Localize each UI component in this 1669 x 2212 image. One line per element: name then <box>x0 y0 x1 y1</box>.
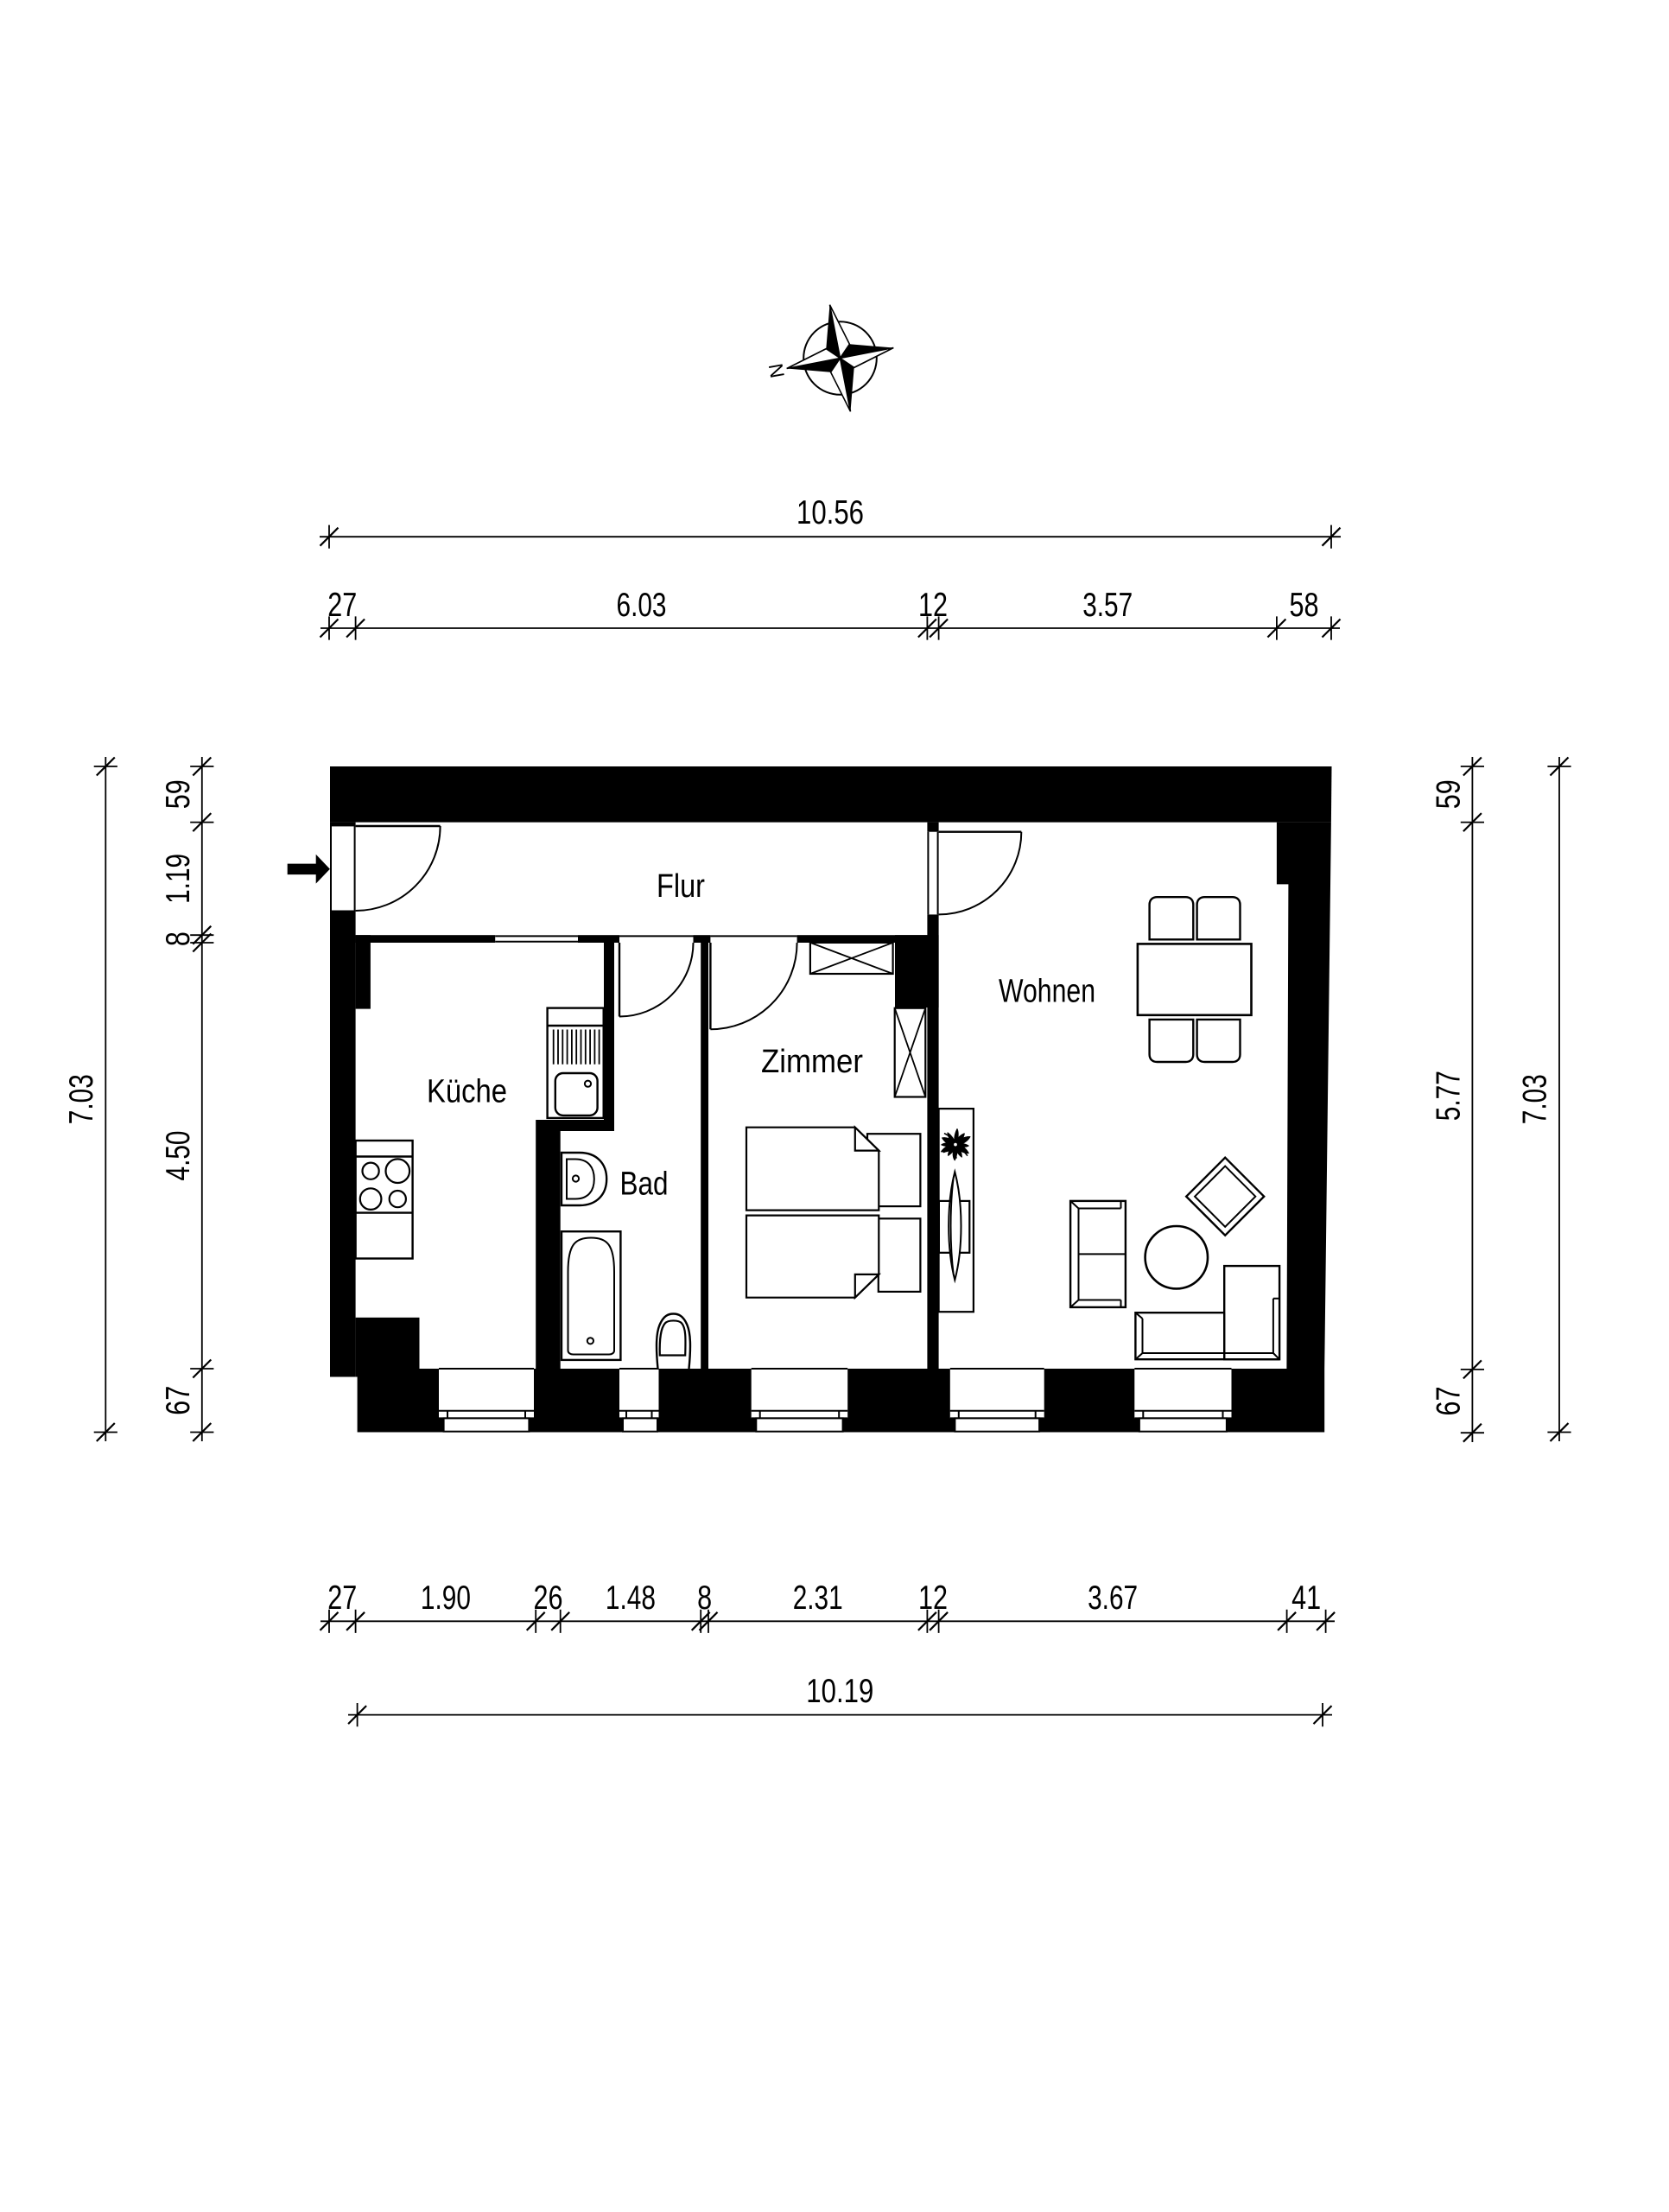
svg-text:1.48: 1.48 <box>606 1580 656 1617</box>
svg-text:7.03: 7.03 <box>1517 1074 1554 1124</box>
svg-text:Zimmer: Zimmer <box>761 1044 863 1080</box>
svg-text:67: 67 <box>1431 1387 1468 1416</box>
svg-text:7.03: 7.03 <box>63 1074 100 1124</box>
svg-text:27: 27 <box>327 1580 357 1617</box>
svg-text:10.56: 10.56 <box>796 494 864 531</box>
svg-text:41: 41 <box>1291 1580 1321 1617</box>
svg-text:1.19: 1.19 <box>160 854 197 904</box>
svg-text:27: 27 <box>327 587 357 624</box>
svg-text:Küche: Küche <box>427 1074 507 1110</box>
svg-text:3.67: 3.67 <box>1088 1580 1138 1617</box>
svg-text:Wohnen: Wohnen <box>999 973 1095 1009</box>
svg-text:59: 59 <box>1431 779 1468 809</box>
svg-text:6.03: 6.03 <box>617 587 667 624</box>
svg-text:8: 8 <box>697 1580 712 1617</box>
svg-text:59: 59 <box>160 779 197 809</box>
svg-text:67: 67 <box>160 1386 197 1415</box>
svg-text:1.90: 1.90 <box>421 1580 471 1617</box>
svg-text:8: 8 <box>160 931 197 946</box>
svg-text:4.50: 4.50 <box>160 1131 197 1181</box>
svg-text:26: 26 <box>534 1580 563 1617</box>
svg-text:5.77: 5.77 <box>1431 1071 1468 1121</box>
svg-text:12: 12 <box>918 587 948 624</box>
svg-text:Flur: Flur <box>657 868 705 905</box>
svg-text:2.31: 2.31 <box>793 1580 843 1617</box>
svg-text:Bad: Bad <box>620 1166 669 1203</box>
svg-text:10.19: 10.19 <box>806 1673 873 1710</box>
svg-text:58: 58 <box>1290 587 1319 624</box>
svg-text:3.57: 3.57 <box>1082 587 1133 624</box>
svg-text:12: 12 <box>918 1580 948 1617</box>
